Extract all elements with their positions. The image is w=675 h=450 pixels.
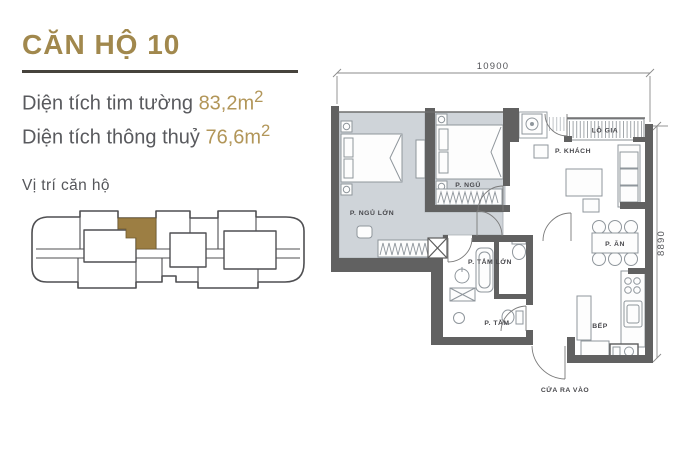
room-label-living: P. KHÁCH <box>555 146 591 155</box>
vanity-icon <box>450 288 475 301</box>
room-label-dining: P. ĂN <box>605 239 625 248</box>
area-thong-thuy-value: 76,6m <box>205 127 261 149</box>
kitchen-counter-icon <box>577 271 645 356</box>
dimension-width-label: 10900 <box>477 61 509 72</box>
room-label-master-bath: P. TẮM LỚN <box>468 257 512 266</box>
room-label-bedroom: P. NGỦ <box>455 180 481 189</box>
room-label-master-bedroom: P. NGỦ LỚN <box>350 208 394 217</box>
armchair-icon <box>534 145 548 158</box>
page-title: CĂN HỘ 10 <box>22 30 318 61</box>
area-tim-tuong-value: 83,2m <box>199 92 255 114</box>
pouf-icon <box>583 199 599 212</box>
wardrobe-master-icon <box>378 240 428 257</box>
room-label-loggia: LÔ GIA <box>592 126 618 135</box>
dimension-height-label: 8890 <box>656 230 667 256</box>
floor-plan: 10900 8890 P. NGỦ LỚN P. NGỦ P. KHÁCH LÔ… <box>323 55 673 407</box>
title-underline <box>22 70 298 73</box>
stool-icon <box>357 226 372 238</box>
dresser-icon <box>416 140 425 178</box>
washer-niche-icon <box>519 112 547 138</box>
bed-second-icon <box>436 125 503 179</box>
area-thong-thuy-label: Diện tích thông thuỷ <box>22 127 205 149</box>
area-tim-tuong: Diện tích tim tường 83,2m2 <box>22 83 318 118</box>
wardrobe-second-icon <box>436 189 502 205</box>
room-label-bath: P. TẮM <box>484 318 509 327</box>
room-label-kitchen: BẾP <box>592 320 607 330</box>
sofa-icon <box>618 145 640 207</box>
toilet-icon <box>513 245 526 260</box>
info-panel: CĂN HỘ 10 Diện tích tim tường 83,2m2 Diệ… <box>22 30 318 297</box>
area-thong-thuy-sup: 2 <box>261 121 270 140</box>
building-location-map <box>22 205 314 297</box>
area-thong-thuy: Diện tích thông thuỷ 76,6m2 <box>22 117 318 152</box>
shaft-icon <box>428 238 447 258</box>
room-label-entrance: CỬA RA VÀO <box>541 385 589 394</box>
toilet2-tank <box>516 311 523 324</box>
location-label: Vị trí căn hộ <box>22 177 318 195</box>
area-tim-tuong-sup: 2 <box>254 87 263 106</box>
coffee-table-icon <box>566 169 602 196</box>
area-tim-tuong-label: Diện tích tim tường <box>22 92 199 114</box>
sink-small-icon <box>454 313 465 324</box>
bed-master-icon <box>341 134 402 182</box>
bathroom-fixtures <box>450 238 526 324</box>
